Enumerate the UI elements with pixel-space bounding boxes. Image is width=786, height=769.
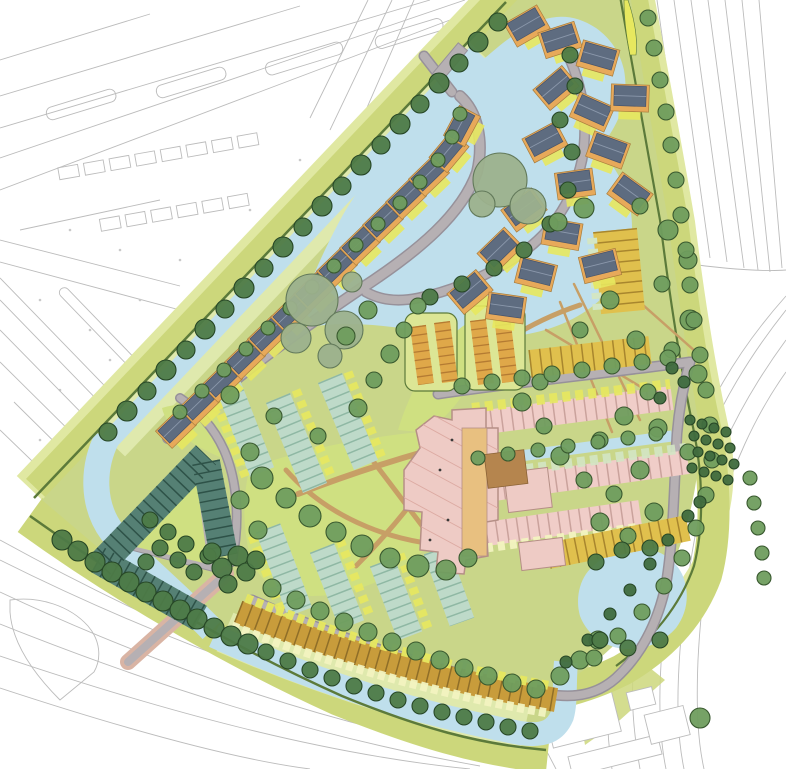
masterplan-svg <box>0 0 786 769</box>
pink-wing-2 <box>518 537 565 570</box>
pink-building-courtyard <box>462 428 487 556</box>
masterplan-canvas <box>0 0 786 769</box>
